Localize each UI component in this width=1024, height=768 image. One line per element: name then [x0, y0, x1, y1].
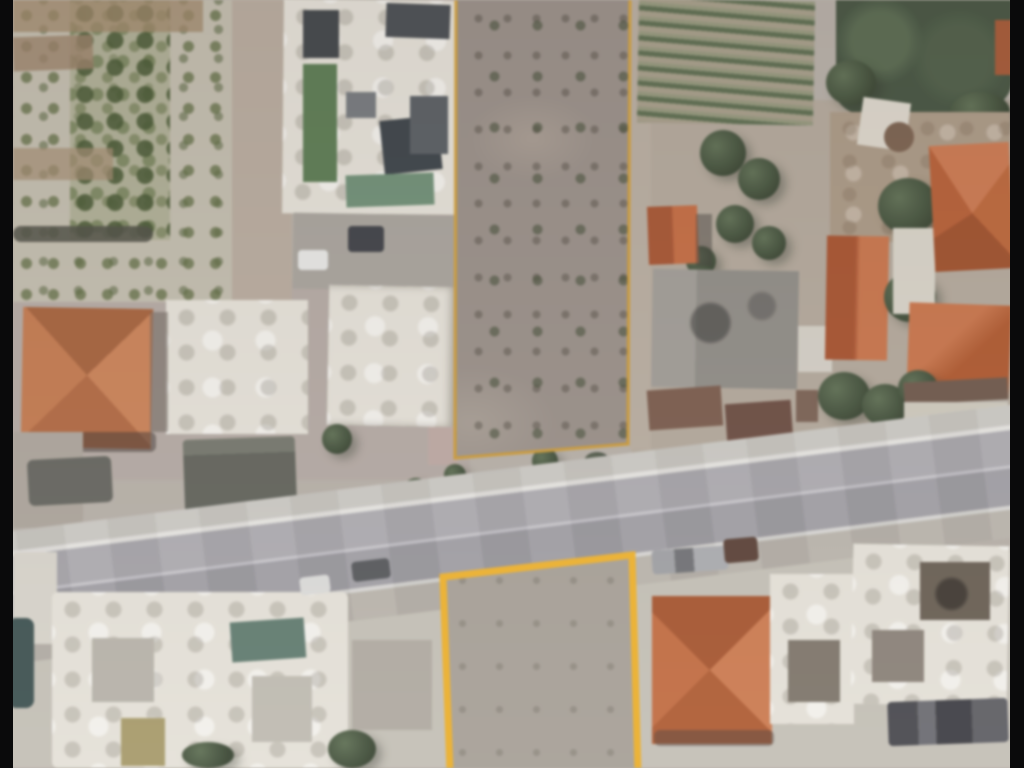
lower-parcel-outline [443, 555, 638, 768]
upper-parcel-outline [455, 0, 630, 458]
letterbox-bar-left [0, 0, 13, 768]
parcel-outlines [0, 0, 1024, 768]
satellite-image [0, 0, 1024, 768]
letterbox-bar-right [1010, 0, 1024, 768]
photo-scene [0, 0, 1024, 768]
